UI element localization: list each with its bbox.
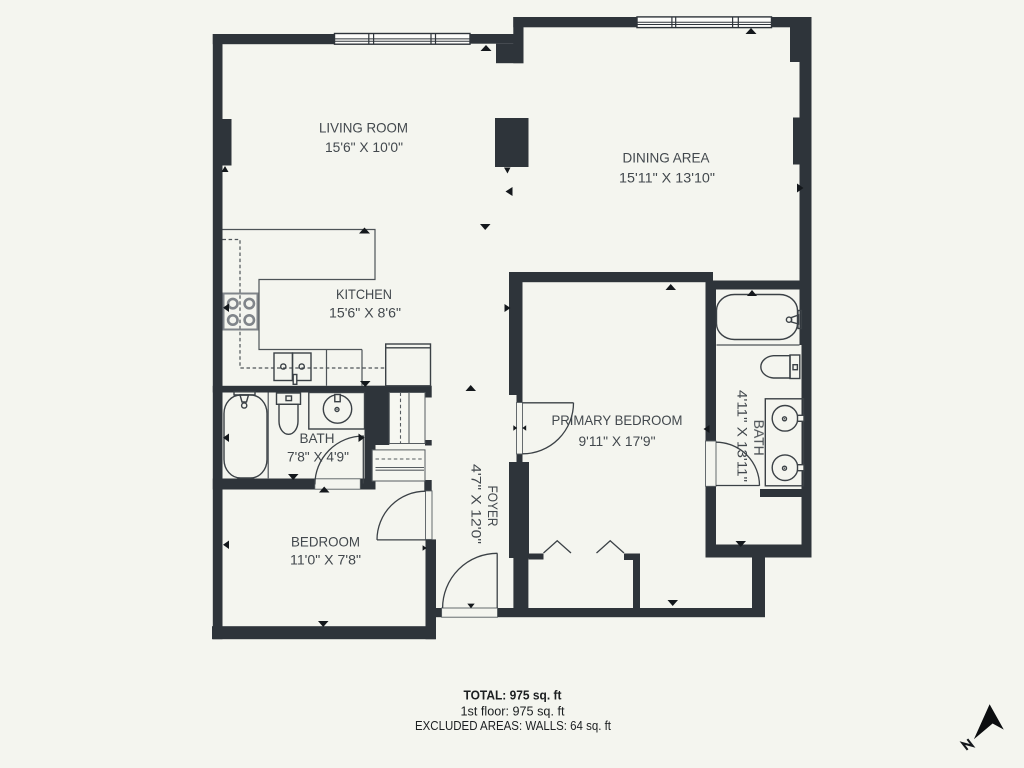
svg-text:15'6" X 10'0": 15'6" X 10'0" xyxy=(325,140,403,155)
svg-text:11'0" X 7'8": 11'0" X 7'8" xyxy=(290,553,361,568)
svg-text:KITCHEN: KITCHEN xyxy=(336,286,392,302)
svg-text:7'8" X 4'9": 7'8" X 4'9" xyxy=(287,450,349,465)
svg-text:BEDROOM: BEDROOM xyxy=(291,534,360,550)
svg-text:LIVING ROOM: LIVING ROOM xyxy=(319,120,408,136)
svg-text:BATH: BATH xyxy=(751,420,767,456)
svg-text:FOYER: FOYER xyxy=(485,486,501,527)
svg-text:15'11" X 13'10": 15'11" X 13'10" xyxy=(619,171,715,186)
svg-text:TOTAL: 975 sq. ft: TOTAL: 975 sq. ft xyxy=(464,688,563,703)
svg-text:DINING AREA: DINING AREA xyxy=(623,150,711,166)
svg-text:4'7" X 12'0": 4'7" X 12'0" xyxy=(469,464,484,544)
svg-text:BATH: BATH xyxy=(300,430,335,446)
svg-text:15'6" X 8'6": 15'6" X 8'6" xyxy=(329,306,401,321)
svg-text:9'11" X 17'9": 9'11" X 17'9" xyxy=(579,434,656,449)
svg-text:EXCLUDED AREAS: WALLS: 64 sq.: EXCLUDED AREAS: WALLS: 64 sq. ft xyxy=(415,718,611,733)
svg-text:4'11" X 13'11": 4'11" X 13'11" xyxy=(735,390,750,482)
svg-text:1st floor: 975 sq. ft: 1st floor: 975 sq. ft xyxy=(461,704,565,719)
